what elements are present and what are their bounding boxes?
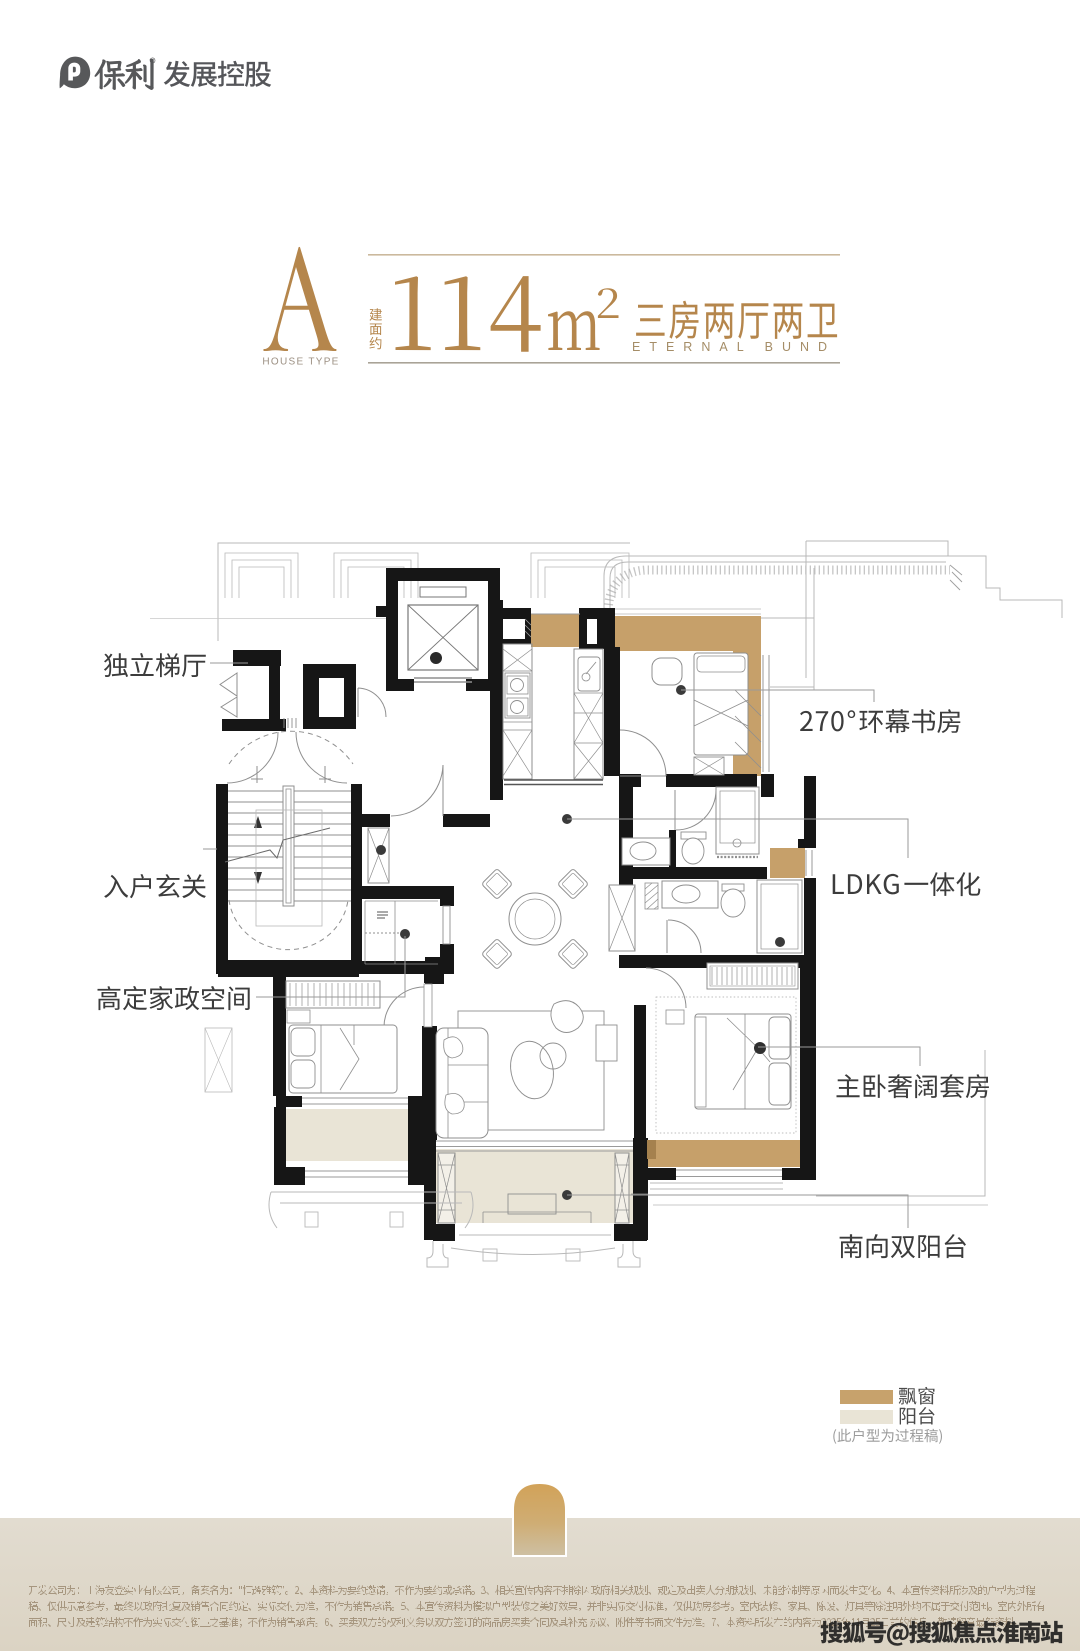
svg-text:ETERNAL BUND: ETERNAL BUND: [632, 340, 836, 354]
svg-text:HOUSE TYPE: HOUSE TYPE: [262, 357, 339, 368]
